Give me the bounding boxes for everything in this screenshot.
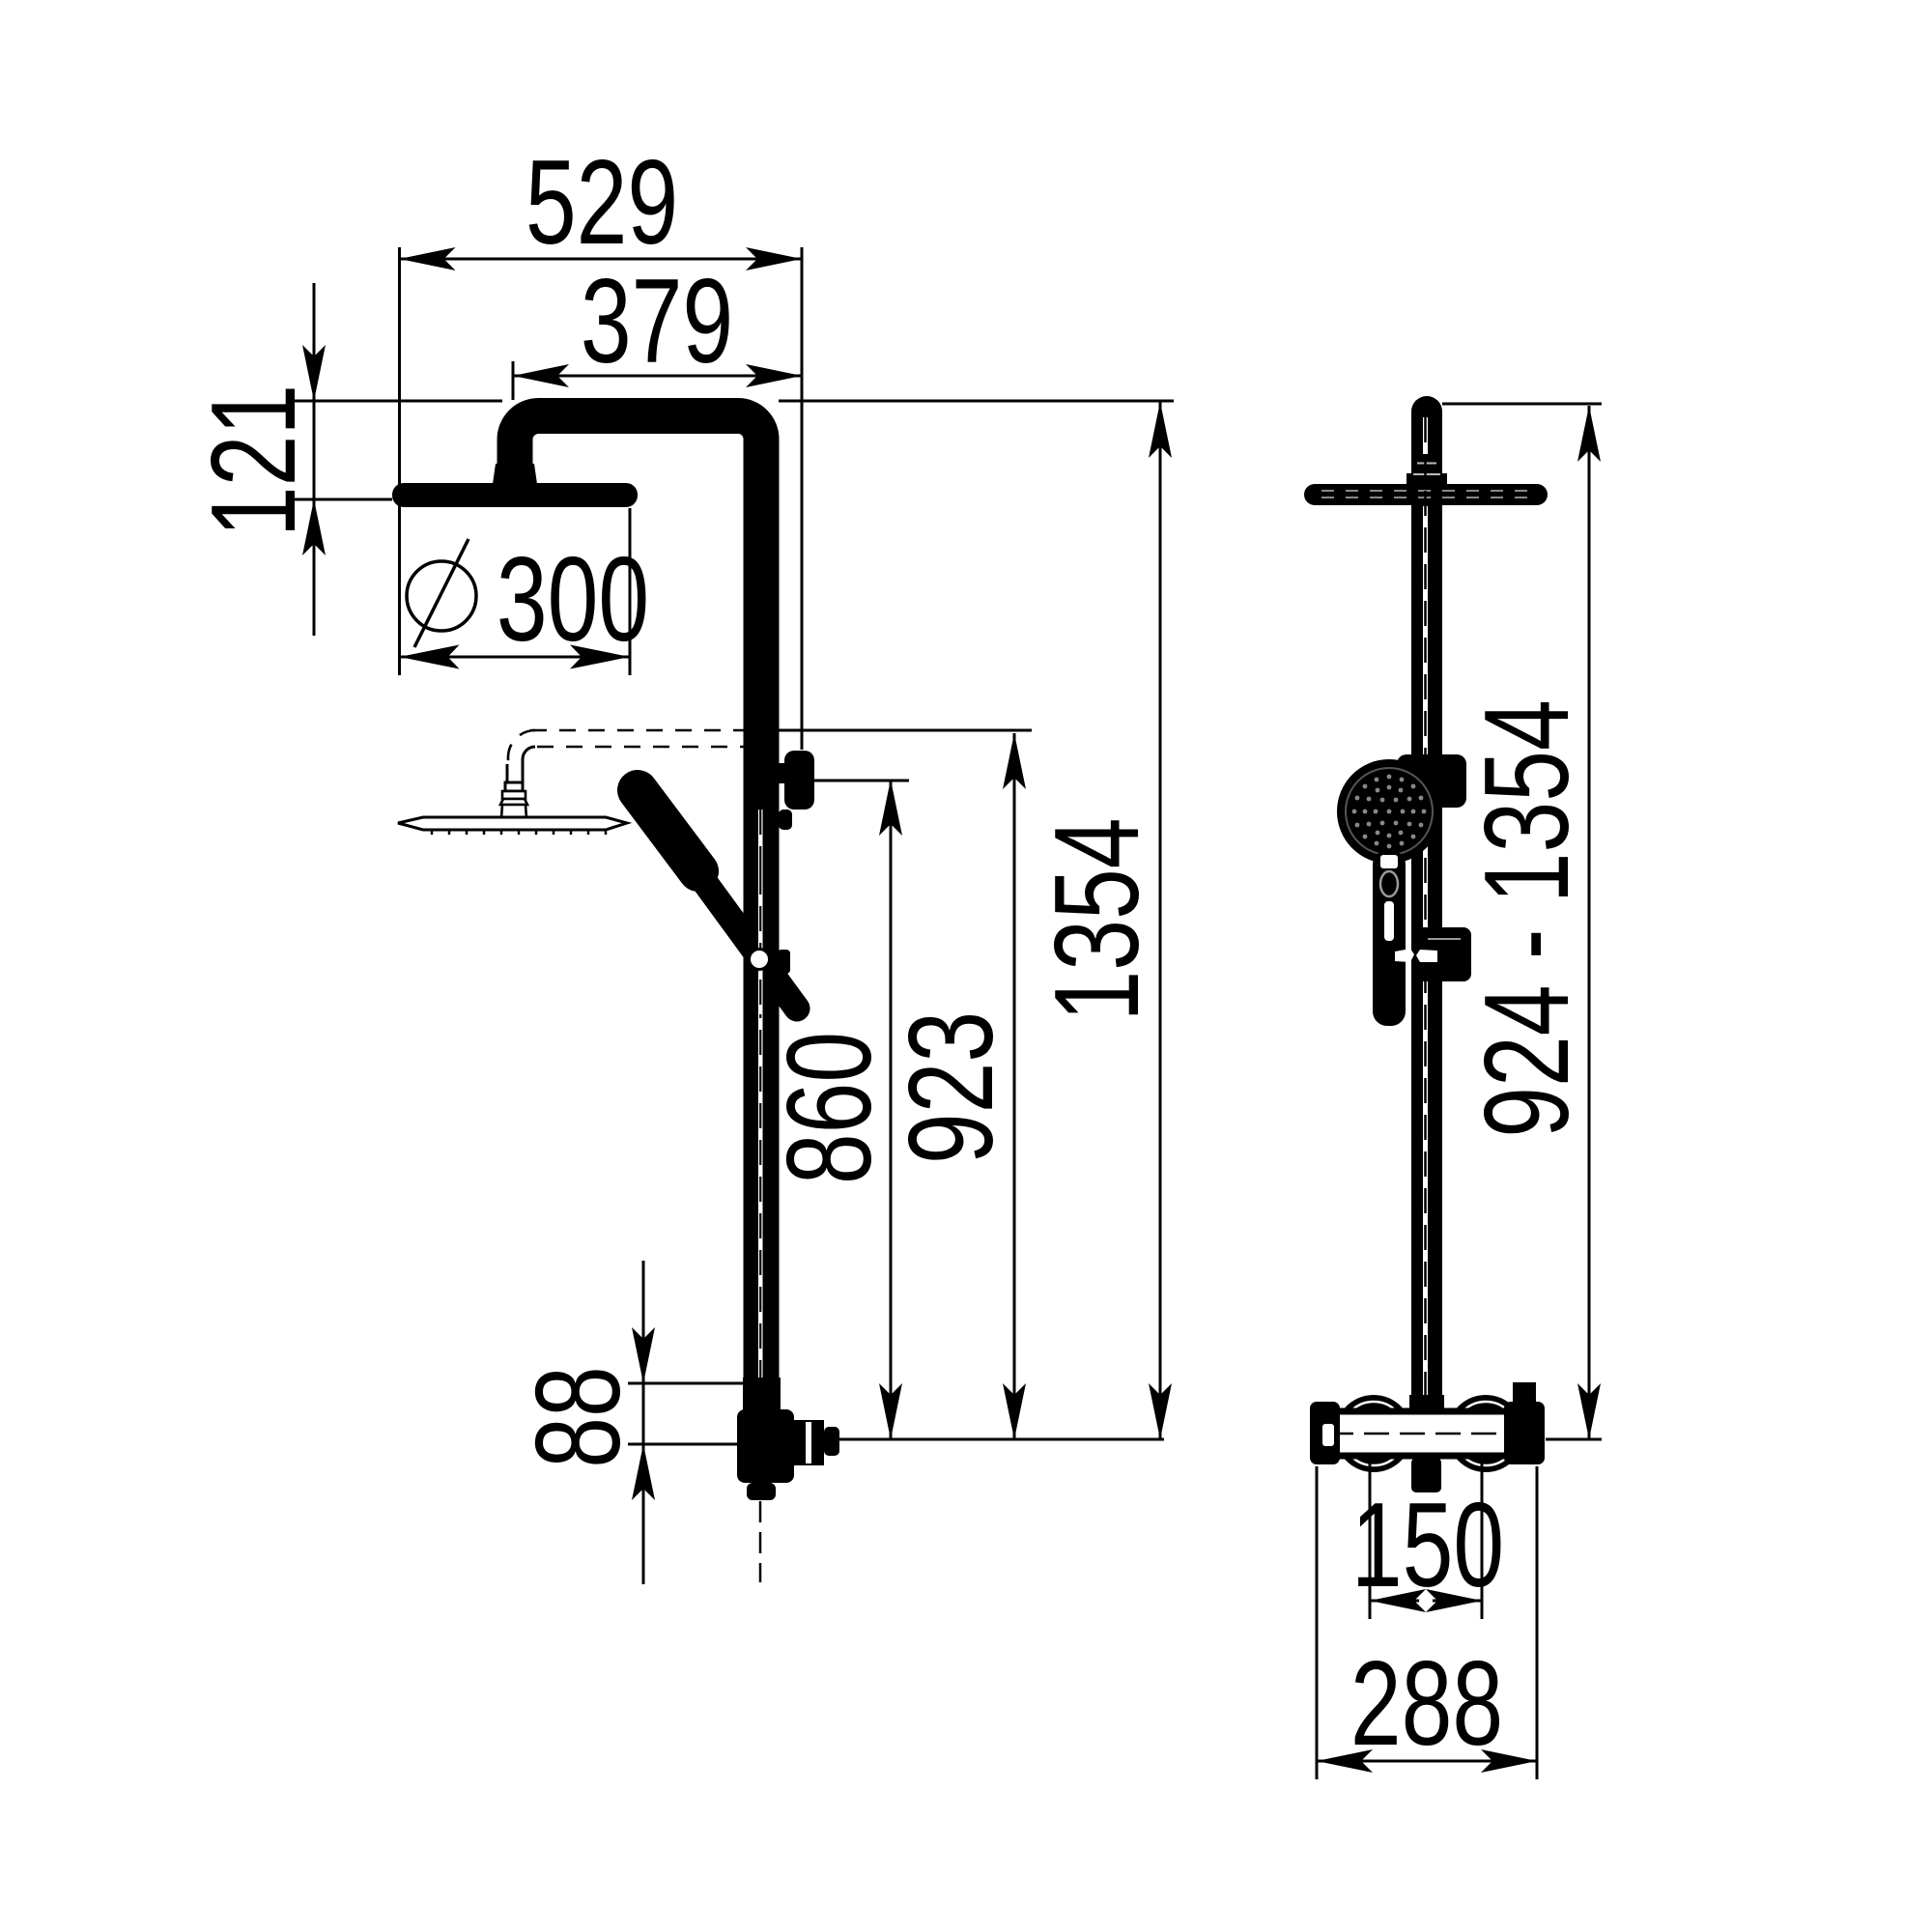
svg-text:1354: 1354 xyxy=(1031,818,1164,1022)
svg-text:923: 923 xyxy=(885,1011,1018,1164)
svg-text:529: 529 xyxy=(526,136,678,270)
svg-text:379: 379 xyxy=(581,255,733,388)
svg-text:288: 288 xyxy=(1350,1637,1503,1771)
svg-text:88: 88 xyxy=(512,1366,645,1468)
svg-text:860: 860 xyxy=(763,1032,896,1184)
svg-text:924 - 1354: 924 - 1354 xyxy=(1461,699,1594,1138)
svg-text:300: 300 xyxy=(497,533,649,667)
svg-text:150: 150 xyxy=(1351,1479,1504,1612)
svg-text:121: 121 xyxy=(187,384,321,537)
